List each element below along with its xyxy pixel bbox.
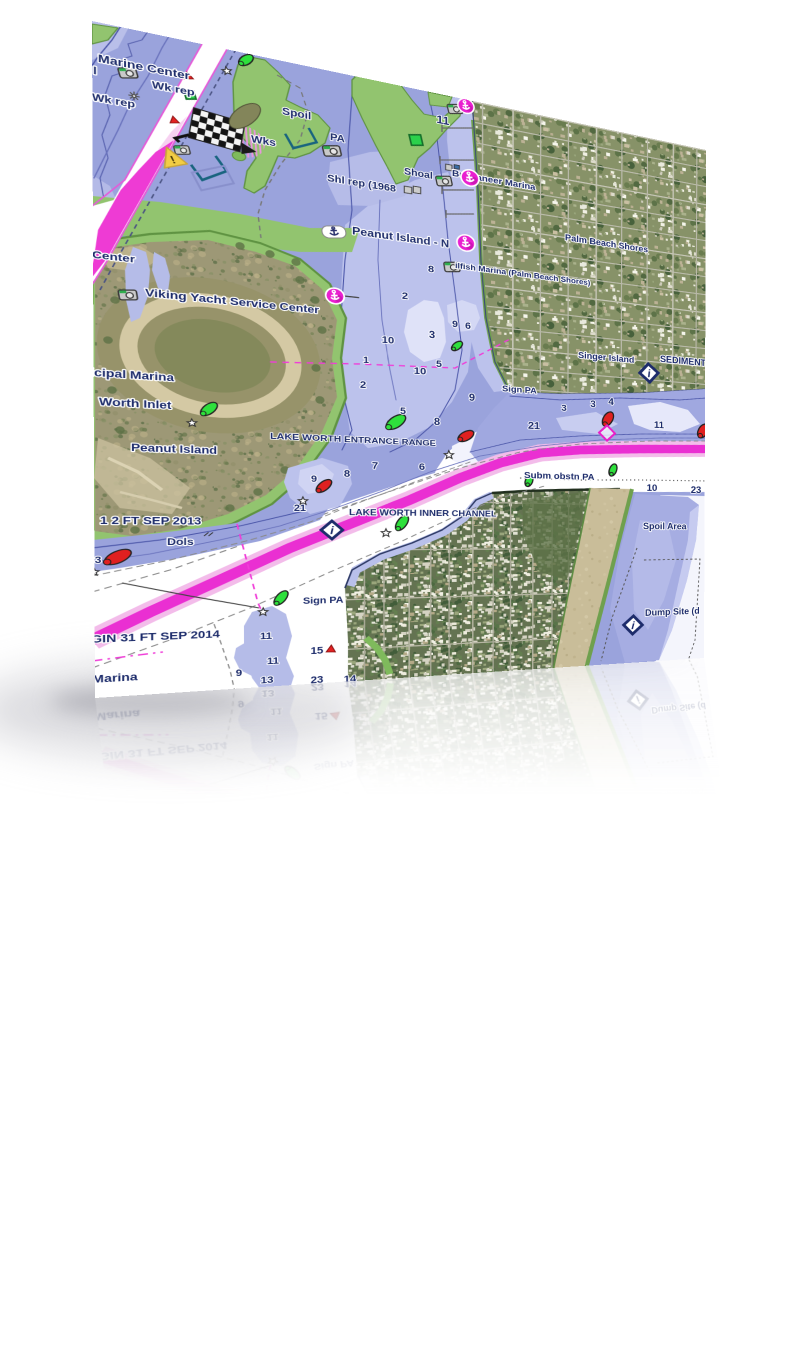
svg-text:6: 6: [465, 320, 471, 331]
svg-text:9: 9: [337, 881, 345, 892]
svg-text:8: 8: [481, 1073, 489, 1085]
svg-text:11: 11: [260, 630, 272, 641]
svg-text:2: 2: [398, 967, 406, 979]
svg-text:Palm Beach Shores: Palm Beach Shores: [621, 1066, 703, 1099]
svg-text:Sign PA: Sign PA: [303, 595, 344, 606]
svg-text:Sign PA: Sign PA: [538, 940, 573, 956]
svg-text:1 2 FT SEP 2013: 1 2 FT SEP 2013: [100, 514, 201, 527]
svg-text:9: 9: [469, 392, 475, 403]
svg-text:21: 21: [294, 503, 306, 514]
svg-text:10: 10: [669, 827, 681, 839]
svg-text:8: 8: [434, 416, 440, 428]
svg-text:8: 8: [344, 468, 350, 479]
svg-text:21: 21: [316, 853, 330, 865]
svg-text:Singer Island: Singer Island: [618, 958, 674, 980]
svg-text:Spoil Area: Spoil Area: [643, 521, 687, 531]
svg-text:3: 3: [561, 402, 567, 413]
svg-text:!: !: [238, 1215, 247, 1228]
svg-text:Shoal: Shoal: [470, 1166, 499, 1185]
svg-text:4: 4: [642, 918, 649, 929]
svg-text:10: 10: [425, 1008, 439, 1022]
svg-text:8: 8: [428, 262, 434, 274]
svg-text:9: 9: [237, 698, 245, 709]
svg-text:3: 3: [624, 918, 631, 929]
svg-text:7: 7: [399, 886, 407, 898]
svg-text:11: 11: [266, 731, 280, 743]
svg-text:Wk rep: Wk rep: [231, 1279, 274, 1304]
svg-text:3: 3: [112, 829, 120, 840]
svg-text:7: 7: [372, 460, 378, 471]
svg-text:6: 6: [419, 461, 425, 473]
svg-text:icipal Marina: icipal Marina: [132, 999, 217, 1028]
svg-text:6: 6: [510, 1012, 517, 1024]
svg-text:10: 10: [647, 483, 658, 494]
svg-text:5: 5: [434, 937, 441, 949]
svg-text:Wk rep: Wk rep: [170, 1276, 213, 1301]
svg-text:5: 5: [476, 978, 484, 990]
svg-text:i: i: [685, 941, 689, 954]
svg-text:LAKE WORTH INNER CHANNEL: LAKE WORTH INNER CHANNEL: [349, 507, 496, 519]
svg-text:11: 11: [684, 888, 695, 900]
svg-text:3: 3: [473, 1008, 481, 1021]
svg-text:Worth Inlet: Worth Inlet: [137, 972, 210, 998]
svg-text:11: 11: [436, 114, 449, 129]
svg-text:LAKE WORTH INNER CHANNEL: LAKE WORTH INNER CHANNEL: [370, 823, 517, 854]
svg-text:23: 23: [712, 819, 724, 831]
svg-text:SEDIMENT: SEDIMENT: [699, 945, 745, 965]
svg-text:13: 13: [261, 688, 275, 699]
svg-text:3: 3: [95, 556, 102, 566]
svg-text:LAKE WORTH ENTRANCE RANGE: LAKE WORTH ENTRANCE RANGE: [302, 901, 467, 939]
svg-text:11: 11: [269, 706, 283, 717]
svg-text:Subm obstn PA: Subm obstn PA: [549, 847, 620, 868]
svg-text:21: 21: [559, 903, 573, 917]
svg-text:3: 3: [429, 329, 435, 341]
svg-text:11: 11: [654, 420, 664, 431]
svg-text:15: 15: [310, 645, 323, 657]
svg-text:5: 5: [436, 358, 442, 369]
svg-text:11: 11: [267, 655, 279, 666]
svg-text:8: 8: [370, 881, 378, 893]
svg-text:11: 11: [508, 1217, 522, 1233]
svg-text:Subm obstn PA: Subm obstn PA: [524, 470, 595, 482]
svg-text:1 2 FT SEP 2013: 1 2 FT SEP 2013: [122, 854, 224, 880]
svg-text:PA: PA: [330, 131, 345, 145]
svg-text:Center: Center: [149, 1122, 193, 1145]
svg-text:4: 4: [608, 397, 613, 408]
svg-text:PA: PA: [401, 1214, 417, 1230]
svg-text:Marine Center: Marine Center: [181, 1296, 271, 1338]
svg-text:Viking Yacht Service Center: Viking Yacht Service Center: [197, 1048, 369, 1100]
svg-text:8: 8: [466, 921, 474, 933]
svg-text:1: 1: [363, 355, 369, 366]
svg-text:9: 9: [311, 474, 317, 485]
svg-text:i: i: [349, 826, 355, 838]
svg-text:Buccaneer Marina: Buccaneer Marina: [517, 1141, 600, 1177]
svg-text:15: 15: [314, 710, 328, 722]
svg-text:ilfish Marina (Palm Beach Shor: ilfish Marina (Palm Beach Shores): [508, 1040, 641, 1083]
svg-text:2: 2: [451, 1050, 459, 1062]
svg-text:10: 10: [453, 973, 467, 986]
svg-text:Dols: Dols: [167, 536, 194, 547]
svg-text:10: 10: [382, 334, 395, 346]
svg-text:Spoil: Spoil: [357, 1241, 387, 1262]
svg-text:Peanut Island: Peanut Island: [163, 922, 249, 948]
svg-text:9: 9: [236, 667, 243, 678]
svg-text:21: 21: [528, 420, 540, 432]
svg-text:6: 6: [446, 879, 454, 891]
svg-text:Peanut Island - N: Peanut Island - N: [410, 1096, 506, 1134]
svg-text:3: 3: [595, 919, 602, 930]
svg-text:Wks: Wks: [322, 1219, 348, 1238]
svg-text:2: 2: [402, 290, 409, 301]
svg-text:23: 23: [691, 485, 702, 496]
svg-text:Dols: Dols: [186, 834, 214, 848]
svg-text:2: 2: [360, 379, 366, 390]
svg-text:13: 13: [261, 674, 274, 685]
svg-text:9: 9: [497, 1016, 504, 1028]
svg-text:Shl rep (1968: Shl rep (1968: [392, 1158, 460, 1189]
svg-text:10: 10: [414, 364, 427, 376]
svg-text:3: 3: [590, 399, 595, 410]
svg-text:1: 1: [404, 992, 411, 1003]
svg-text:l: l: [174, 1313, 179, 1326]
svg-text:9: 9: [452, 318, 458, 329]
svg-text:l: l: [93, 65, 97, 77]
svg-text:9: 9: [504, 940, 512, 952]
svg-text:5: 5: [400, 405, 406, 416]
